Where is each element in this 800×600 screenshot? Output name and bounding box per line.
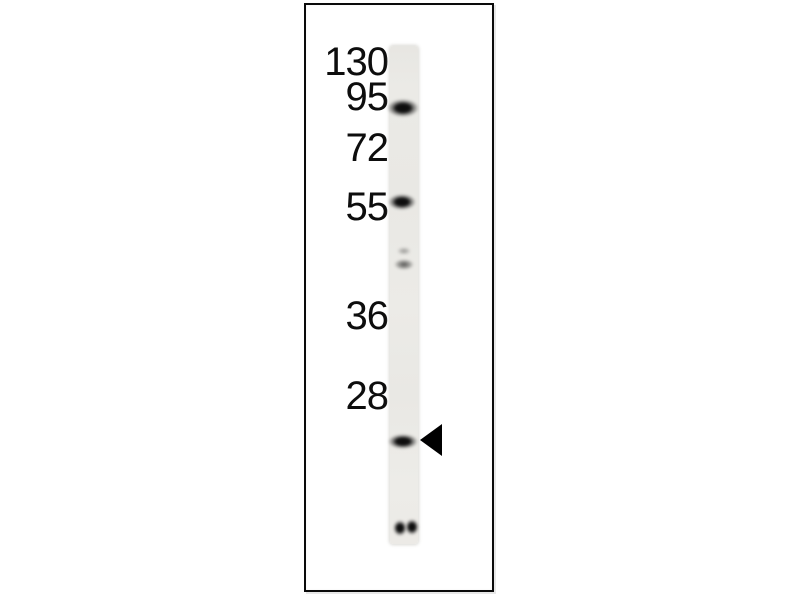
band-doublet-upper [397, 247, 411, 255]
band-at-55-marker [388, 194, 416, 210]
band-bottom-right [405, 519, 419, 535]
band-layer [0, 0, 800, 600]
target-band-arrowhead-icon [420, 424, 442, 456]
band-at-95-marker [387, 99, 419, 117]
band-doublet-lower [394, 259, 414, 270]
western-blot-figure: 130 95 72 55 36 28 [0, 0, 800, 600]
band-target-arrow-marked [388, 434, 418, 449]
